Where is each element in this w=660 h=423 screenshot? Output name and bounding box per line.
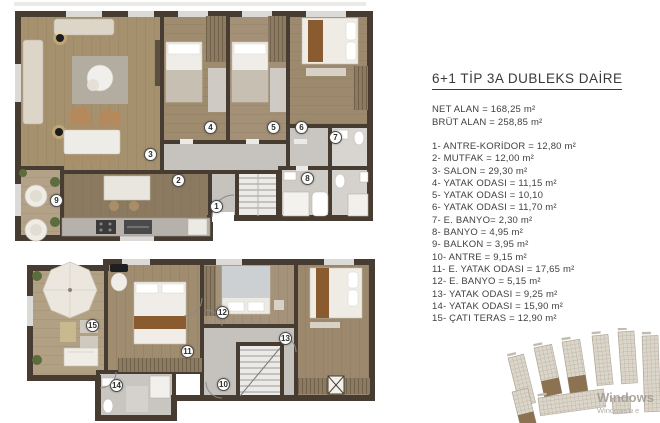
room-area-item: 11- E. YATAK ODASI = 17,65 m² <box>432 264 642 276</box>
room-number-badge: 6 <box>295 121 308 134</box>
room-number-badge: 10 <box>217 378 230 391</box>
info-panel: 6+1 TİP 3A DUBLEKS DAİRE NET ALAN = 168,… <box>432 70 642 325</box>
room-area-item: 14- YATAK ODASI = 15,90 m² <box>432 301 642 313</box>
room-number-badge: 15 <box>86 319 99 332</box>
plan-title: 6+1 TİP 3A DUBLEKS DAİRE <box>432 71 622 90</box>
room-number-badge: 14 <box>110 379 123 392</box>
room-number-badge: 8 <box>301 172 314 185</box>
room-area-item: 3- SALON = 29,30 m² <box>432 166 642 178</box>
site-block <box>561 335 588 393</box>
lower-floor-plan <box>26 256 376 423</box>
watermark-line1: Windows <box>597 390 660 405</box>
room-area-item: 4- YATAK ODASI = 11,15 m² <box>432 178 642 190</box>
room-number-badge: 4 <box>204 121 217 134</box>
closet-strip-11 <box>118 358 202 372</box>
room-number-badge: 1 <box>210 200 223 213</box>
floorplan-page: 6+1 TİP 3A DUBLEKS DAİRE NET ALAN = 168,… <box>0 0 660 423</box>
room-area-item: 9- BALKON = 3,95 m² <box>432 239 642 251</box>
net-area: NET ALAN = 168,25 m² <box>432 103 642 116</box>
room-number-badge: 11 <box>181 345 194 358</box>
room-area-item: 12- E. BANYO = 5,15 m² <box>432 276 642 288</box>
site-block <box>618 328 638 384</box>
site-block <box>533 340 562 397</box>
bath-vestibule <box>288 126 330 168</box>
room-number-badge: 13 <box>279 332 292 345</box>
room-area-item: 1- ANTRE-KORİDOR = 12,80 m² <box>432 141 642 153</box>
watermark-line2: Windows'u e <box>597 406 660 415</box>
room-area-item: 6- YATAK ODASI = 11,70 m² <box>432 202 642 214</box>
room-area-item: 10- ANTRE = 9,15 m² <box>432 252 642 264</box>
room-area-item: 2- MUTFAK = 12,00 m² <box>432 153 642 165</box>
room-number-badge: 7 <box>329 131 342 144</box>
room-area-item: 15- ÇATI TERAS = 12,90 m² <box>432 313 642 325</box>
room-corridor <box>162 142 288 172</box>
room-number-badge: 12 <box>216 306 229 319</box>
room-area-list: 1- ANTRE-KORİDOR = 12,80 m²2- MUTFAK = 1… <box>432 141 642 325</box>
room-number-badge: 3 <box>144 148 157 161</box>
room-area-item: 8- BANYO = 4,95 m² <box>432 227 642 239</box>
windows-watermark: Windows Windows'u e <box>597 390 660 422</box>
room-area-item: 13- YATAK ODASI = 9,25 m² <box>432 289 642 301</box>
room-number-badge: 5 <box>267 121 280 134</box>
room-number-badge: 2 <box>172 174 185 187</box>
gross-area: BRÜT ALAN = 258,85 m² <box>432 116 642 129</box>
upper-floor-plan <box>10 6 374 248</box>
room-area-item: 5- YATAK ODASI = 10,10 <box>432 190 642 202</box>
site-block <box>592 330 614 385</box>
room-number-badge: 9 <box>50 194 63 207</box>
room-area-item: 7- E. BANYO= 2,30 m² <box>432 215 642 227</box>
area-summary: NET ALAN = 168,25 m² BRÜT ALAN = 258,85 … <box>432 103 642 129</box>
